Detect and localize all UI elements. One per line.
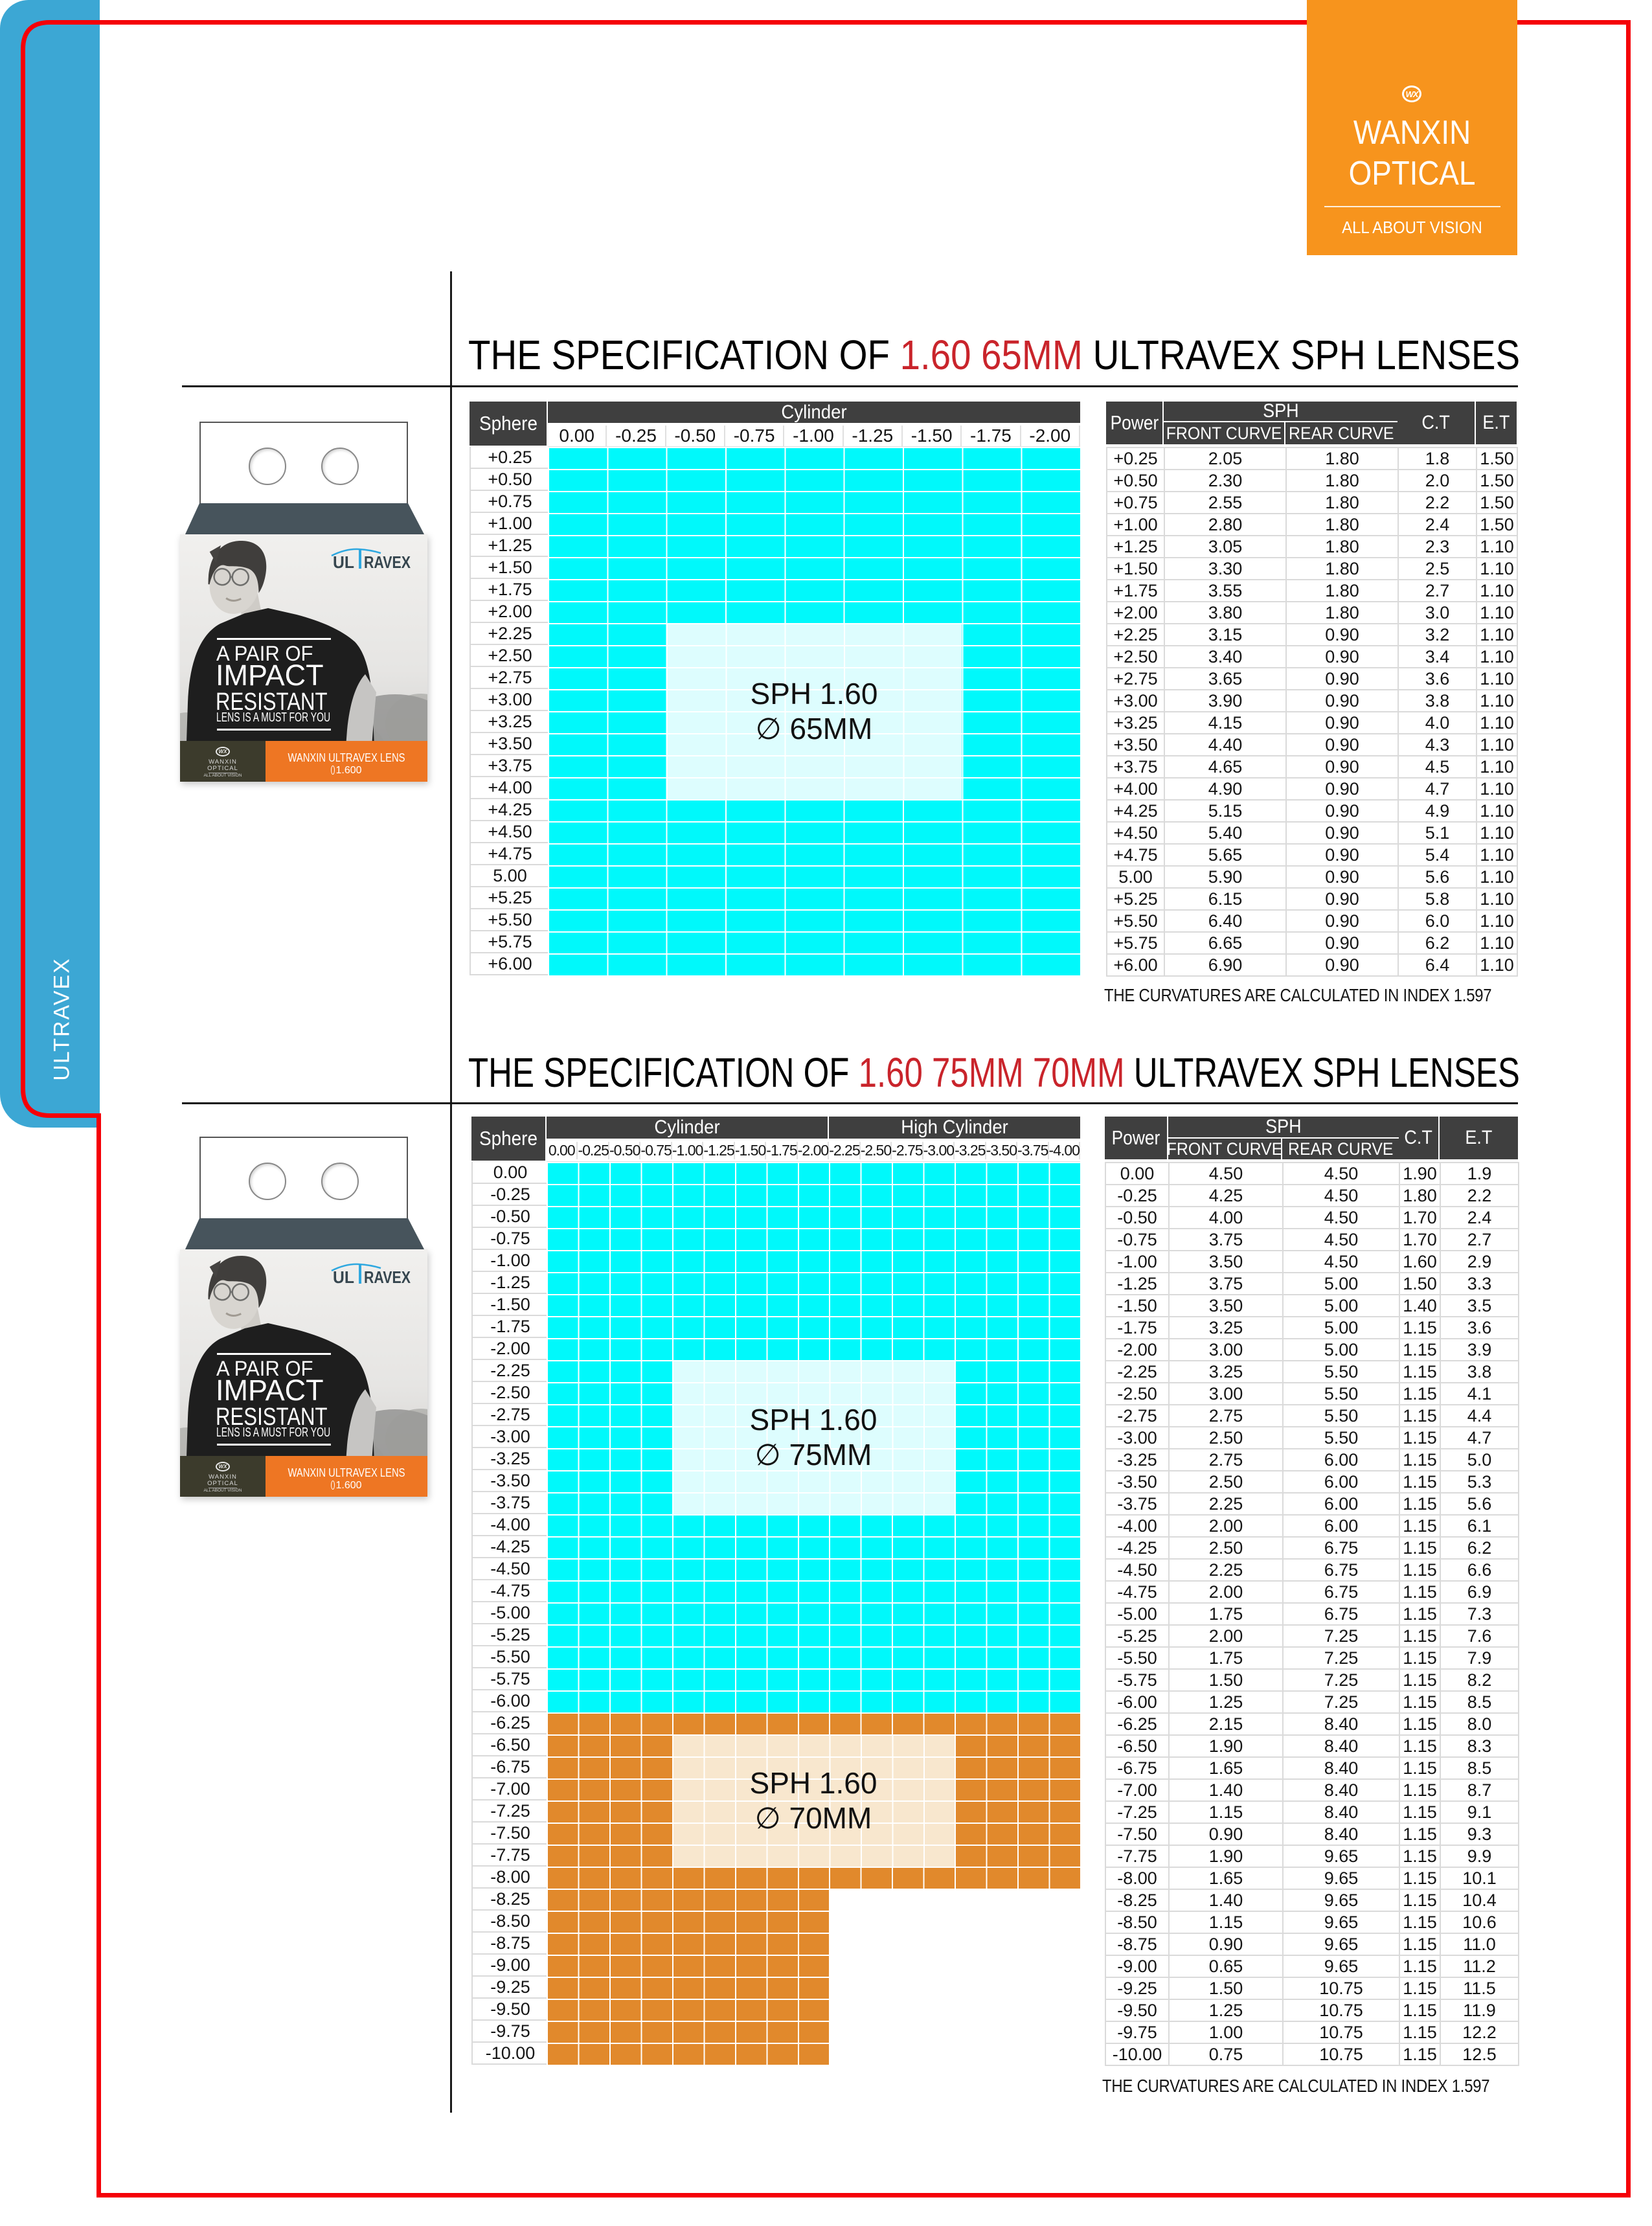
svg-text:UL: UL xyxy=(333,1267,354,1287)
svg-text:UL: UL xyxy=(333,552,354,572)
svg-text:RAVEX: RAVEX xyxy=(364,1267,411,1287)
svg-text:RAVEX: RAVEX xyxy=(364,552,411,572)
